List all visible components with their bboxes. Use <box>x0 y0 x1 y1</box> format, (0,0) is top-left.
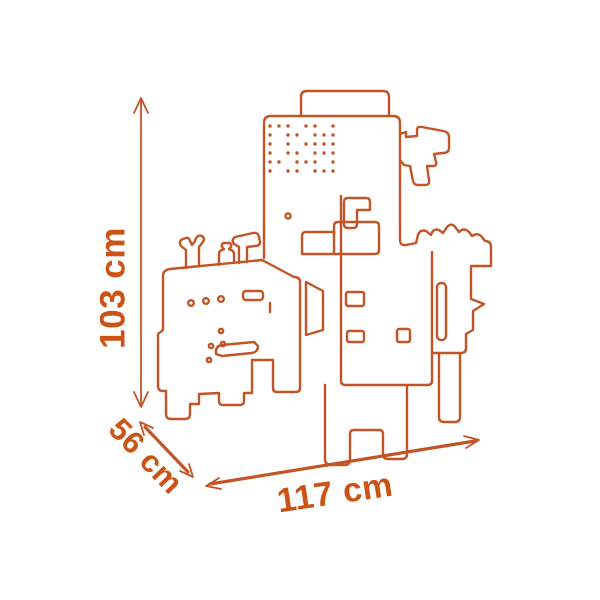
height-arrow <box>134 98 148 407</box>
workbench-back-panel <box>264 91 400 258</box>
right-table <box>400 208 491 422</box>
height-dimension-label: 103 cm <box>96 227 131 349</box>
center-cabinet <box>306 196 432 385</box>
tools-silhouette <box>180 233 260 268</box>
left-table <box>158 260 300 419</box>
pegboard-dots <box>268 124 334 172</box>
product-dimension-diagram: 103 cm 56 cm 117 cm <box>0 0 600 600</box>
drill-icon <box>400 127 449 185</box>
